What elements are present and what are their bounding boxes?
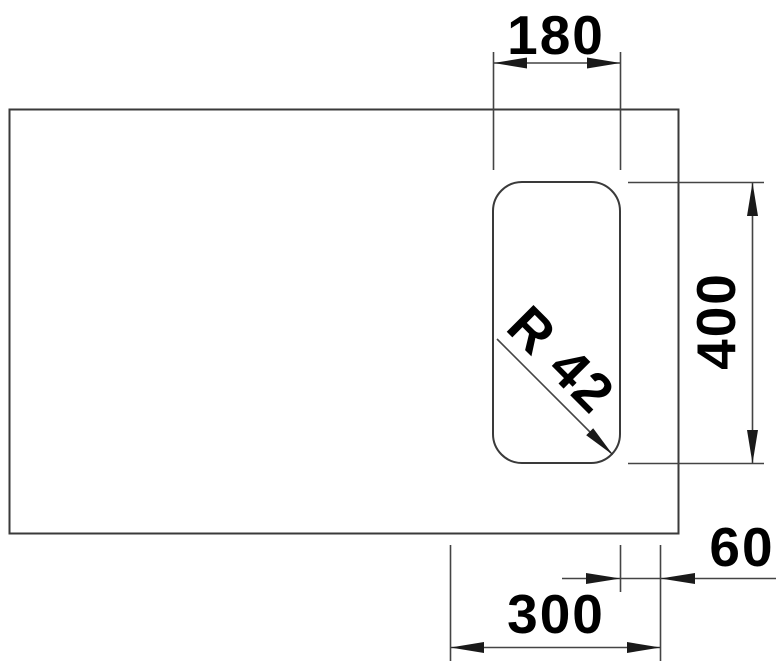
technical-drawing-page: 180 400 R 42 60 <box>0 0 779 669</box>
dimension-label-height: 400 <box>685 272 747 370</box>
dimension-label-bottom-offset: 300 <box>507 583 605 645</box>
arrowhead-left-icon <box>661 573 696 584</box>
dimension-bottom-offset: 300 <box>451 545 661 661</box>
arrowhead-right-icon <box>627 642 661 653</box>
arrowhead-down-icon <box>747 430 758 464</box>
arrowhead-up-icon <box>747 183 758 217</box>
dimension-label-width: 180 <box>507 4 605 66</box>
dimension-label-right-offset: 60 <box>709 516 774 578</box>
arrowhead-left-icon <box>451 642 485 653</box>
sink-cutout-technical-drawing: 180 400 R 42 60 <box>0 0 779 669</box>
